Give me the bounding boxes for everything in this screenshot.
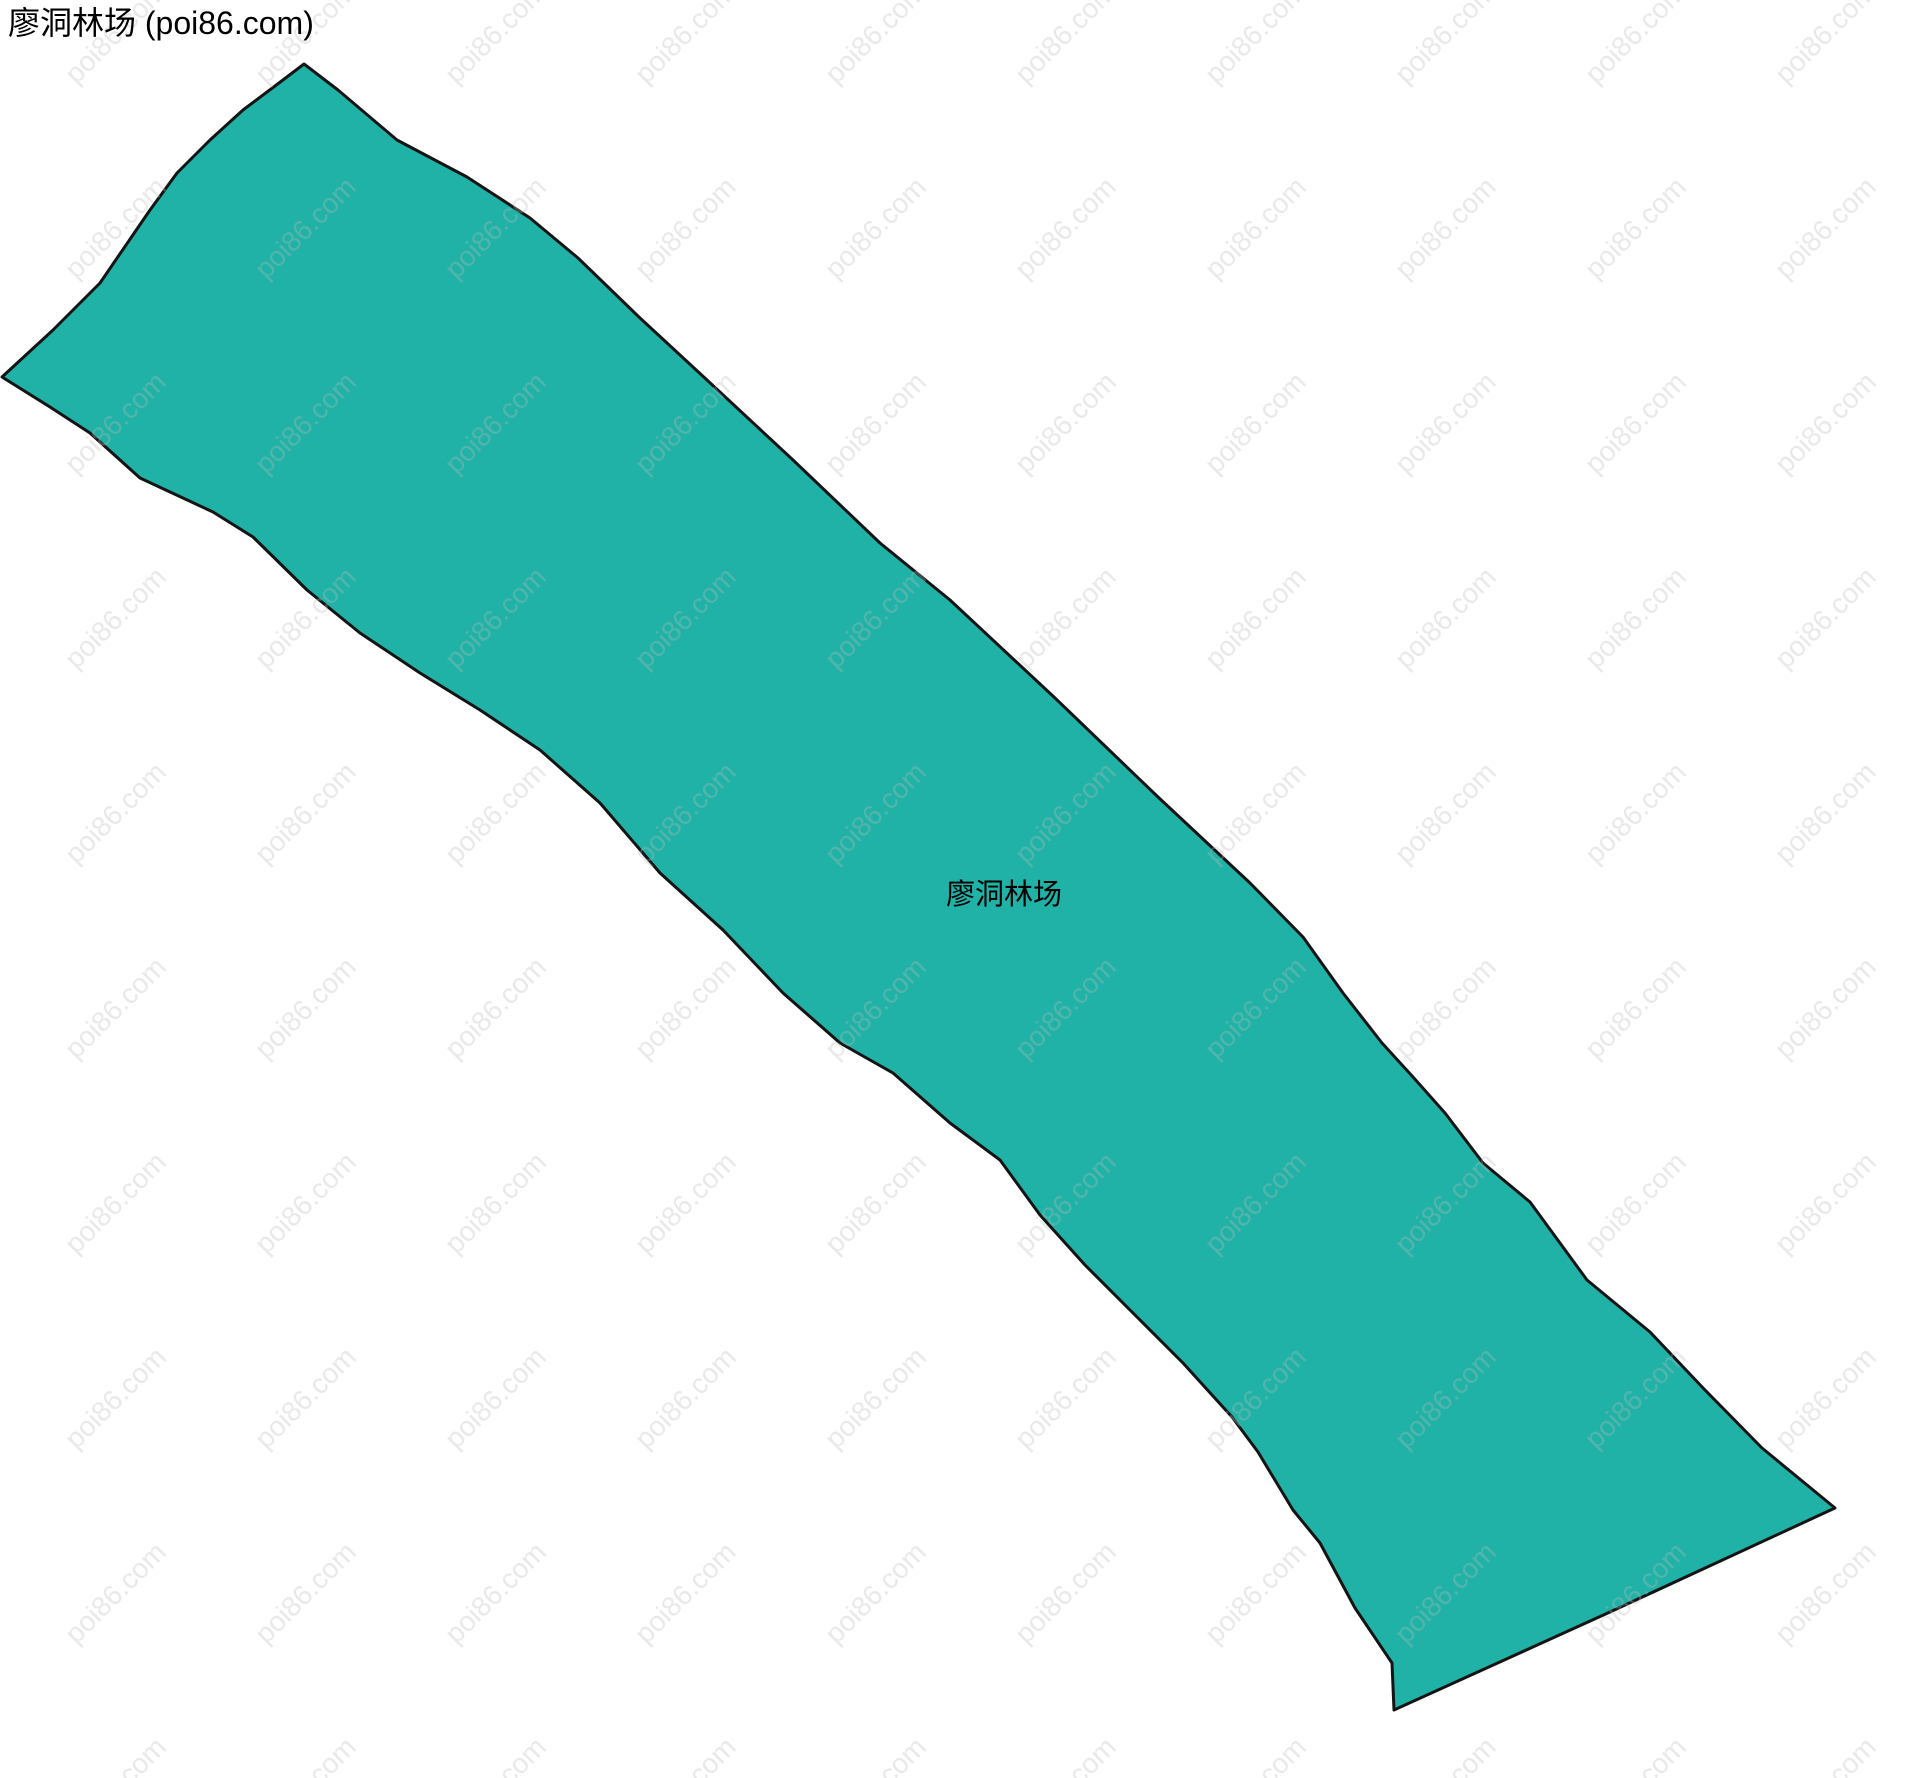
region-label: 廖洞林场 — [946, 880, 1062, 912]
page-title: 廖洞林场 (poi86.com) — [8, 4, 314, 42]
map-canvas: poi86.com 廖洞林场 (poi86.com) 廖洞林场 — [0, 0, 1920, 1778]
